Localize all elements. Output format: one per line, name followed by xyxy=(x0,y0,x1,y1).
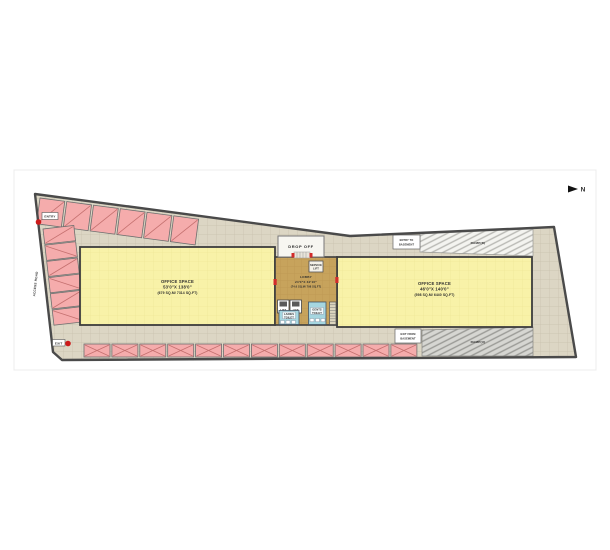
toilet-fixture xyxy=(292,321,296,324)
office-left-area: (679 SQ.M/ 7314 SQ.FT) xyxy=(157,291,197,295)
toilet-fixture xyxy=(310,319,314,322)
floor-plan-canvas: RAMP(D) ENTRY TO BASEMENT RAMP(U) EXIT F… xyxy=(0,0,610,550)
office-space-right: OFFICE SPACE 46'0"X 140'0" (598 SQ.M/ 64… xyxy=(337,257,532,327)
ramp-down-label: RAMP(D) xyxy=(471,241,486,245)
exit-dot-icon xyxy=(65,341,71,347)
service-lift-line2: LIFT xyxy=(313,267,319,271)
gents-toilet: GENTS TOILET xyxy=(309,302,327,325)
parking-stall xyxy=(90,205,118,234)
entry-to-basement-line1: ENTRY TO xyxy=(400,238,414,242)
toilet-fixture xyxy=(321,319,325,322)
step-marker-left xyxy=(292,253,295,258)
parking-stall xyxy=(391,344,417,357)
parking-stall xyxy=(45,242,78,261)
drop-off-label: DROP OFF xyxy=(288,244,313,249)
office-right-dims: 46'0"X 140'0" xyxy=(420,287,449,292)
exit-label: EXIT xyxy=(55,341,63,345)
ladies-toilet-line2: TOILET xyxy=(284,315,294,319)
office-left-dims: 53'0"X 138'0" xyxy=(163,285,192,290)
lift-left-car-icon xyxy=(280,302,288,307)
ramp-up-label: RAMP(U) xyxy=(471,340,486,344)
entry-label: ENTRY xyxy=(44,215,56,219)
parking-stall xyxy=(50,290,83,309)
lobby-dims: 24'0"X 32'10" xyxy=(295,280,317,284)
north-indicator: N xyxy=(568,186,586,194)
entry-dot-icon xyxy=(36,219,42,225)
step-marker-right xyxy=(310,253,313,258)
parking-stall xyxy=(363,344,389,357)
office-space-left: OFFICE SPACE 53'0"X 138'0" (679 SQ.M/ 73… xyxy=(80,247,275,325)
exit-from-basement-line1: EXIT FROM xyxy=(400,332,415,336)
parking-stall xyxy=(43,225,76,244)
staircase xyxy=(330,302,337,325)
drop-off-bay: DROP OFF xyxy=(278,236,324,258)
parking-stall xyxy=(112,344,138,357)
north-label: N xyxy=(581,187,586,194)
office-left-name: OFFICE SPACE xyxy=(161,279,194,284)
parking-stall xyxy=(49,274,82,293)
office-right-name: OFFICE SPACE xyxy=(418,281,451,286)
office-right-grid xyxy=(337,257,532,327)
parking-stall xyxy=(144,212,172,241)
parking-stall xyxy=(279,344,305,357)
service-lift: SERVICE LIFT xyxy=(309,261,323,272)
parking-stall xyxy=(47,258,80,277)
parking-stall xyxy=(140,344,166,357)
floor-plan-page: RAMP(D) ENTRY TO BASEMENT RAMP(U) EXIT F… xyxy=(0,0,610,550)
lobby-name: LOBBY xyxy=(300,275,313,279)
parking-stall xyxy=(84,344,110,357)
access-road-label: ACCESS ROAD xyxy=(32,271,39,297)
entry-to-basement-line2: BASEMENT xyxy=(399,243,415,247)
parking-stall xyxy=(117,209,145,238)
parking-stall xyxy=(170,216,198,245)
office-right-area: (598 SQ.M/ 6440 SQ.FT) xyxy=(414,293,454,297)
toilet-fixture xyxy=(316,319,320,322)
parking-stall xyxy=(224,344,250,357)
gents-toilet-line2: TOILET xyxy=(312,311,322,315)
exit-from-basement-box xyxy=(395,329,421,343)
service-lift-line1: SERVICE xyxy=(310,263,322,267)
parking-stall xyxy=(168,344,194,357)
parking-stall xyxy=(196,344,222,357)
parking-stall xyxy=(307,344,333,357)
parking-stall xyxy=(335,344,361,357)
exit-from-basement-line2: BASEMENT xyxy=(400,337,416,341)
lift-right-car-icon xyxy=(292,302,300,307)
parking-stall xyxy=(251,344,277,357)
north-arrow-icon xyxy=(568,186,578,193)
ladies-toilet: LADIES TOILET xyxy=(279,311,299,325)
lobby-door-marker-east xyxy=(335,277,338,283)
entry-steps xyxy=(294,252,310,258)
entry-to-basement-box xyxy=(393,235,420,249)
toilet-fixture xyxy=(286,321,290,324)
lobby-area: (74.6 SQ.M/ 798 SQ.FT) xyxy=(291,285,321,289)
toilet-fixture xyxy=(281,321,285,324)
lobby-door-marker-west xyxy=(274,279,277,285)
